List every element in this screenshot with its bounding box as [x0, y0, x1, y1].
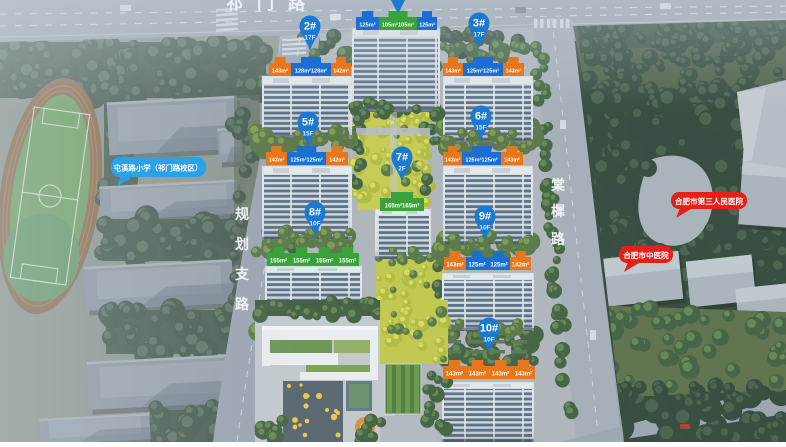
svg-text:10F: 10F [309, 221, 320, 228]
svg-text:棠: 棠 [550, 177, 566, 193]
svg-text:143m²: 143m² [492, 371, 509, 378]
svg-text:125m²125m²: 125m²125m² [465, 157, 497, 164]
svg-text:155m²: 155m² [270, 258, 287, 265]
svg-text:樨: 樨 [551, 203, 565, 219]
svg-text:17F: 17F [304, 35, 315, 42]
svg-text:125m²: 125m² [490, 262, 507, 269]
svg-text:9#: 9# [479, 211, 491, 223]
svg-text:路: 路 [235, 296, 250, 312]
svg-text:155m²: 155m² [316, 258, 333, 265]
svg-text:2F: 2F [398, 166, 406, 173]
svg-text:15F: 15F [475, 125, 486, 132]
svg-text:143m²: 143m² [506, 69, 522, 75]
svg-text:128m²128m²: 128m²128m² [295, 68, 327, 75]
svg-text:143m²: 143m² [445, 158, 461, 164]
svg-text:143m²: 143m² [269, 158, 285, 164]
svg-text:规: 规 [235, 206, 249, 222]
svg-text:路: 路 [551, 231, 566, 247]
svg-text:5#: 5# [302, 117, 314, 129]
svg-text:155m²: 155m² [293, 258, 310, 265]
svg-text:17F: 17F [473, 32, 484, 39]
svg-text:143m²: 143m² [446, 371, 463, 378]
svg-text:支: 支 [234, 266, 250, 282]
svg-text:143m²: 143m² [272, 68, 288, 75]
svg-text:142m²: 142m² [329, 158, 345, 164]
svg-text:142m²: 142m² [333, 69, 349, 75]
svg-text:143m²: 143m² [515, 371, 532, 378]
svg-text:10F: 10F [483, 337, 494, 344]
svg-text:屯溪路小学（祁门路校区）: 屯溪路小学（祁门路校区） [114, 164, 203, 173]
svg-text:7#: 7# [396, 152, 408, 164]
svg-text:155m²: 155m² [339, 258, 356, 265]
svg-text:143m²: 143m² [469, 371, 486, 378]
svg-text:6#: 6# [475, 111, 487, 123]
svg-text:165m²165m²: 165m²165m² [385, 203, 420, 210]
svg-text:15F: 15F [302, 131, 313, 138]
svg-text:125m²: 125m² [468, 262, 485, 269]
svg-text:划: 划 [235, 236, 249, 252]
svg-text:105m²105m²: 105m²105m² [382, 22, 414, 29]
svg-text:125m²: 125m² [359, 22, 375, 29]
svg-text:125m²125m²: 125m²125m² [467, 68, 499, 75]
svg-text:125m²125m²: 125m²125m² [290, 157, 322, 164]
svg-text:祁门路: 祁门路 [226, 0, 319, 13]
svg-text:142m²: 142m² [512, 262, 529, 269]
svg-text:3#: 3# [473, 18, 485, 30]
svg-text:125m²: 125m² [419, 23, 435, 29]
svg-text:合肥市中医院: 合肥市中医院 [623, 250, 669, 260]
svg-text:10#: 10# [480, 323, 498, 335]
svg-text:143m²: 143m² [446, 262, 463, 269]
svg-text:143m²: 143m² [445, 69, 461, 75]
svg-text:合肥市第三人民医院: 合肥市第三人民医院 [675, 196, 744, 206]
svg-text:10F: 10F [479, 225, 490, 232]
svg-text:143m²: 143m² [504, 158, 520, 164]
svg-text:2#: 2# [304, 21, 316, 33]
svg-text:8#: 8# [309, 207, 321, 219]
